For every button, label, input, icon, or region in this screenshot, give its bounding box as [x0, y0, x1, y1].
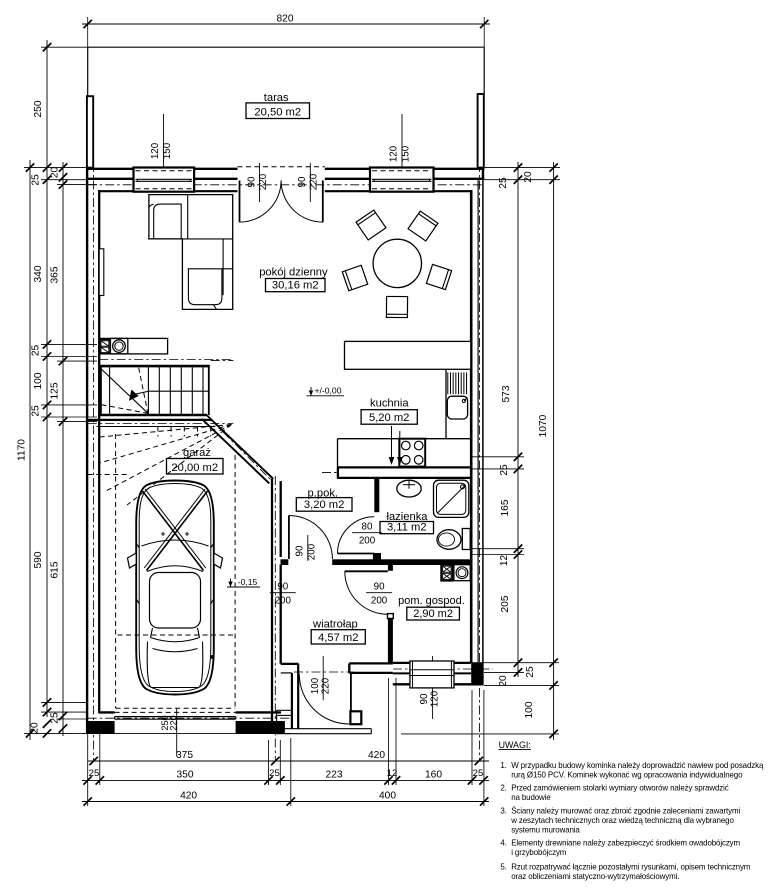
svg-text:w zeszytach technicznych oraz: w zeszytach technicznych oraz wiedzą tec… [510, 816, 734, 825]
svg-text:oraz obliczeniami statyczno-wy: oraz obliczeniami statyczno-wytrzymałośc… [511, 872, 679, 881]
svg-text:5,20 m2: 5,20 m2 [369, 412, 409, 424]
svg-text:340: 340 [33, 265, 44, 282]
svg-text:573: 573 [501, 385, 512, 402]
svg-text:25: 25 [31, 405, 42, 417]
svg-text:120: 120 [150, 142, 161, 159]
svg-text:365: 365 [50, 266, 61, 283]
svg-text:systemu murowania: systemu murowania [511, 826, 580, 835]
svg-text:200: 200 [359, 535, 376, 546]
svg-text:kuchnia: kuchnia [370, 398, 409, 410]
svg-text:90: 90 [277, 582, 288, 593]
svg-text:615: 615 [50, 561, 61, 578]
svg-text:12: 12 [499, 555, 510, 567]
svg-text:25: 25 [31, 345, 42, 357]
svg-text:220: 220 [169, 715, 179, 730]
svg-text:Przed zamówieniem stolarki wym: Przed zamówieniem stolarki wymiary otwor… [511, 784, 729, 793]
svg-text:25: 25 [269, 768, 280, 779]
svg-text:20: 20 [523, 171, 534, 183]
svg-text:5.: 5. [500, 863, 506, 872]
svg-text:200: 200 [275, 595, 292, 606]
svg-text:400: 400 [379, 791, 396, 802]
svg-text:UWAGI:: UWAGI: [499, 740, 531, 750]
svg-text:3,20 m2: 3,20 m2 [304, 499, 344, 511]
svg-text:na budowie: na budowie [511, 793, 551, 802]
svg-text:-0,15: -0,15 [238, 577, 258, 587]
svg-text:1.: 1. [500, 761, 506, 770]
svg-text:25: 25 [498, 177, 509, 189]
svg-text:20: 20 [50, 167, 61, 179]
svg-text:420: 420 [180, 791, 197, 802]
svg-text:25: 25 [31, 174, 42, 186]
svg-text:100: 100 [310, 677, 321, 694]
svg-text:250: 250 [33, 100, 44, 117]
svg-text:i grzybobójczym: i grzybobójczym [511, 848, 567, 857]
svg-text:205: 205 [500, 595, 511, 612]
svg-text:Rzut rozpatrywać łącznie pozos: Rzut rozpatrywać łącznie pozostałymi rys… [511, 863, 751, 872]
svg-text:120: 120 [389, 145, 400, 162]
svg-text:taras: taras [264, 92, 289, 104]
svg-text:420: 420 [368, 750, 385, 761]
svg-text:30,16 m2: 30,16 m2 [272, 280, 319, 292]
svg-text:90: 90 [419, 693, 430, 704]
svg-text:25: 25 [525, 666, 536, 678]
svg-text:220: 220 [258, 173, 269, 190]
svg-text:pom. gospod.: pom. gospod. [398, 595, 465, 607]
svg-text:90: 90 [295, 545, 306, 556]
svg-text:W przypadku budowy kominka nal: W przypadku budowy kominka należy doprow… [511, 761, 764, 770]
svg-text:220: 220 [321, 677, 332, 694]
svg-text:garaż: garaż [183, 447, 211, 459]
svg-text:125: 125 [50, 382, 61, 399]
svg-text:3.: 3. [500, 807, 506, 816]
svg-text:375: 375 [176, 750, 193, 761]
svg-text:25: 25 [499, 464, 510, 476]
svg-text:1070: 1070 [538, 414, 549, 437]
svg-text:2.: 2. [500, 784, 506, 793]
svg-text:25: 25 [473, 768, 484, 779]
svg-text:150: 150 [400, 145, 411, 162]
svg-text:350: 350 [177, 769, 194, 780]
svg-text:100: 100 [524, 701, 535, 718]
svg-text:200: 200 [307, 543, 318, 560]
svg-text:4,57 m2: 4,57 m2 [318, 632, 358, 644]
svg-text:Ściany należy murować oraz zbr: Ściany należy murować oraz zbroić zgodni… [511, 807, 740, 816]
svg-text:200: 200 [371, 595, 388, 606]
svg-text:+/-0,00: +/-0,00 [315, 386, 342, 396]
svg-text:223: 223 [326, 769, 343, 780]
svg-text:165: 165 [500, 499, 511, 516]
svg-text:20: 20 [498, 675, 509, 687]
svg-text:150: 150 [162, 142, 173, 159]
svg-text:820: 820 [277, 14, 294, 25]
svg-text:90: 90 [297, 176, 308, 187]
svg-text:590: 590 [33, 551, 44, 568]
svg-text:rurą Ø150 PCV. Kominek wykonać: rurą Ø150 PCV. Kominek wykonać wg opraco… [511, 771, 743, 780]
svg-text:2,90 m2: 2,90 m2 [413, 608, 453, 620]
svg-text:90: 90 [246, 176, 257, 187]
svg-text:100: 100 [33, 372, 44, 389]
svg-text:160: 160 [425, 769, 442, 780]
svg-text:220: 220 [309, 173, 320, 190]
svg-text:pokój dzienny: pokój dzienny [259, 267, 328, 279]
svg-text:3,11 m2: 3,11 m2 [387, 522, 427, 534]
svg-text:Elementy drewniane należy zabe: Elementy drewniane należy zabezpieczyć ś… [511, 839, 740, 848]
svg-text:1170: 1170 [17, 439, 28, 461]
svg-text:25: 25 [89, 768, 100, 779]
svg-text:90: 90 [374, 582, 385, 593]
svg-text:4.: 4. [500, 839, 506, 848]
svg-text:80: 80 [362, 522, 373, 533]
svg-text:120: 120 [430, 690, 441, 707]
svg-text:20,50 m2: 20,50 m2 [254, 106, 301, 118]
svg-text:wiatrołap: wiatrołap [312, 619, 358, 631]
svg-text:20,00 m2: 20,00 m2 [171, 462, 218, 474]
svg-text:25: 25 [50, 712, 61, 724]
